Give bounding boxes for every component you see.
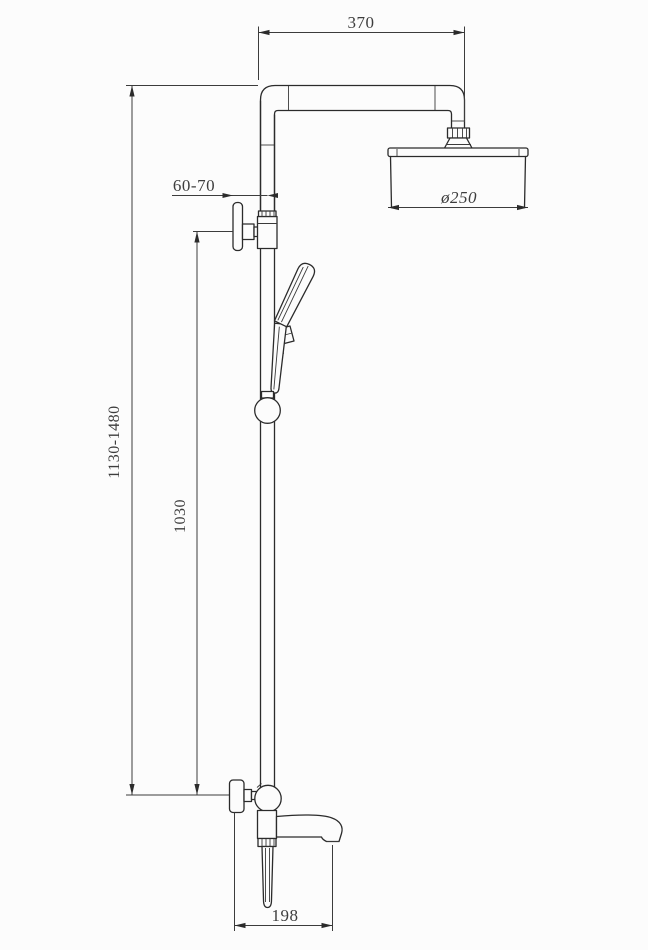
technical-drawing-page: ø250 370 60-70 (0, 0, 648, 950)
tub-spout (277, 815, 343, 842)
dimension-arm-width: 370 (259, 13, 465, 122)
slider-knob (255, 392, 281, 424)
shower-drawing-canvas: ø250 370 60-70 (0, 0, 648, 950)
dimension-bar-height: 1030 (172, 232, 233, 796)
mixer-valve (255, 784, 342, 908)
dimension-wall-offset: 60-70 (172, 176, 278, 198)
head-connector-nut (444, 128, 473, 149)
bar-height-label: 1030 (172, 499, 189, 533)
spout-reach-label: 198 (272, 906, 299, 925)
riser-pipe (261, 101, 275, 788)
upper-wall-bracket (233, 203, 277, 251)
overall-height-label: 1130-1480 (106, 405, 123, 478)
wall-offset-label: 60-70 (173, 176, 215, 195)
rain-shower-head: ø250 (388, 148, 528, 210)
lever-handle (262, 847, 273, 908)
arm-width-label: 370 (348, 13, 375, 32)
lower-wall-plate (230, 780, 258, 813)
dim-arrow-left-icon (388, 205, 399, 210)
dim-arrow-right-icon (517, 205, 528, 210)
valve-knob (255, 785, 281, 811)
head-diameter-label: ø250 (440, 188, 477, 207)
hand-shower (269, 261, 318, 394)
